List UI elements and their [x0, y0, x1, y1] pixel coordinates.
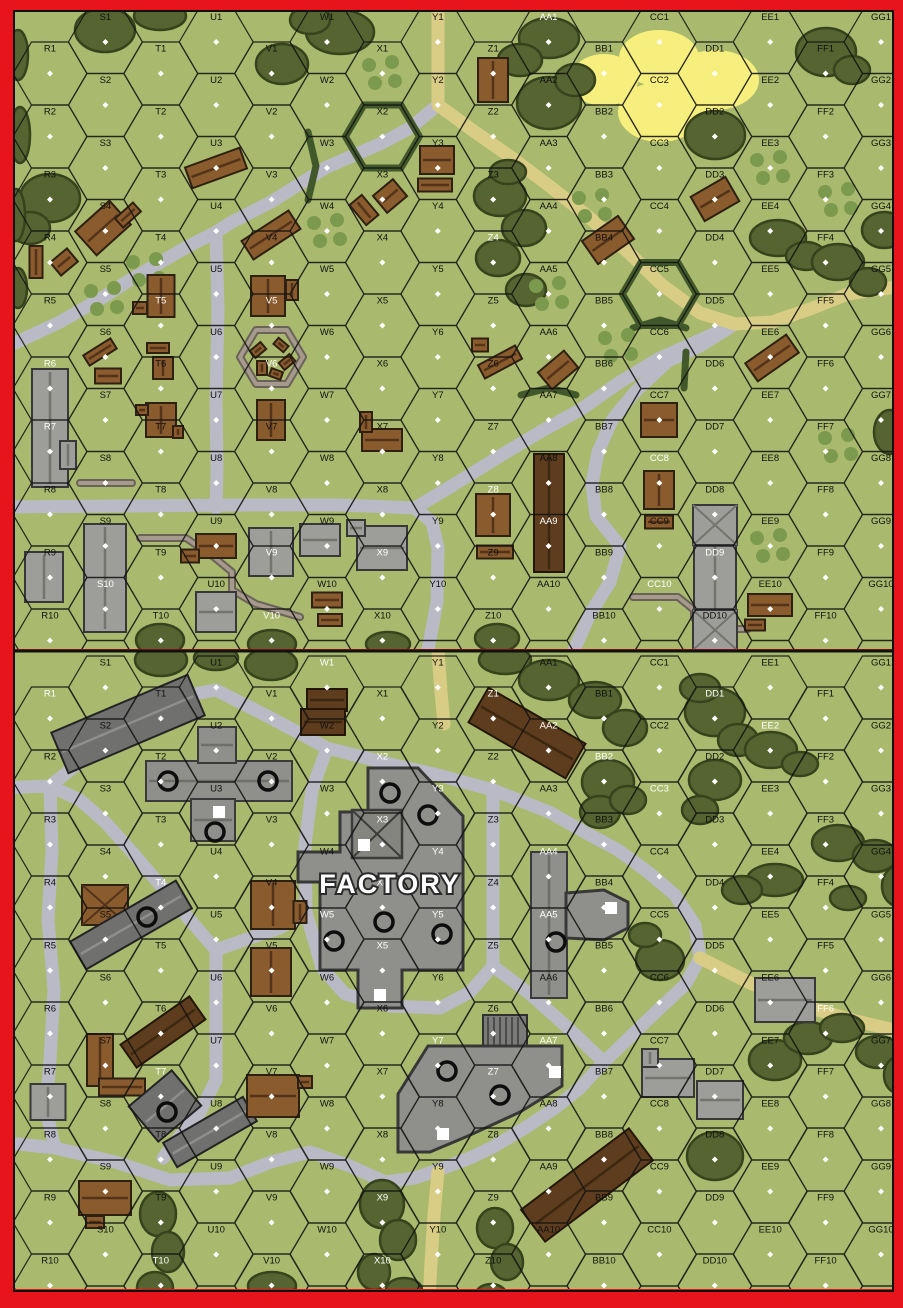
hex-label-Y5: Y5	[432, 910, 444, 921]
hex-label-W4: W4	[320, 201, 334, 212]
orchard-tree-icon	[624, 347, 638, 361]
hex-label-T9: T9	[155, 1193, 166, 1204]
hex-label-AA8: AA8	[540, 1099, 558, 1110]
hex-label-T7: T7	[155, 1067, 166, 1078]
hex-label-BB3: BB3	[595, 815, 613, 826]
hex-label-FF7: FF7	[817, 422, 834, 433]
hex-label-S6: S6	[100, 973, 112, 984]
hex-label-Z10: Z10	[485, 611, 501, 622]
hex-label-W9: W9	[320, 516, 334, 527]
hex-label-GG6: GG6	[871, 327, 891, 338]
hex-label-R7: R7	[44, 1067, 56, 1078]
hex-label-V5: V5	[266, 296, 278, 307]
hex-label-CC10: CC10	[647, 579, 671, 590]
hex-label-R1: R1	[44, 44, 56, 55]
hex-label-FF1: FF1	[817, 689, 834, 700]
hex-label-AA10: AA10	[537, 579, 560, 590]
hex-label-U10: U10	[207, 1225, 224, 1236]
building	[99, 1079, 145, 1096]
hex-label-GG3: GG3	[871, 784, 891, 795]
hex-label-U2: U2	[210, 75, 222, 86]
hex-label-FF9: FF9	[817, 548, 834, 559]
hex-label-Z8: Z8	[488, 485, 499, 496]
hex-label-DD8: DD8	[705, 1130, 724, 1141]
woods-icon	[256, 44, 308, 84]
hex-label-EE1: EE1	[761, 658, 779, 669]
building	[312, 593, 342, 608]
hex-label-W1: W1	[320, 12, 334, 23]
hex-label-CC9: CC9	[650, 1162, 669, 1173]
building	[418, 179, 452, 192]
hex-label-W5: W5	[320, 264, 334, 275]
hex-label-W8: W8	[320, 453, 334, 464]
hex-label-U9: U9	[210, 1162, 222, 1173]
hex-label-GG5: GG5	[871, 910, 891, 921]
orchard-tree-icon	[333, 232, 347, 246]
hex-label-T8: T8	[155, 485, 166, 496]
orchard-tree-icon	[313, 234, 327, 248]
hex-label-EE5: EE5	[761, 910, 779, 921]
hex-label-AA8: AA8	[540, 453, 558, 464]
hex-label-V2: V2	[266, 107, 278, 118]
hex-label-V7: V7	[266, 1067, 278, 1078]
hex-label-Y4: Y4	[432, 847, 444, 858]
hex-label-V4: V4	[266, 233, 278, 244]
woods-icon	[555, 64, 595, 96]
factory-label: FACTORY	[319, 869, 461, 899]
hex-label-S3: S3	[100, 784, 112, 795]
hex-label-EE7: EE7	[761, 1036, 779, 1047]
wargame-map-board: Hex wargame map boards (village + factor…	[0, 0, 903, 1308]
hex-label-Z8: Z8	[488, 1130, 499, 1141]
orchard-tree-icon	[529, 279, 543, 293]
hex-label-S2: S2	[100, 75, 112, 86]
hex-label-X6: X6	[377, 359, 389, 370]
building	[748, 594, 792, 616]
hex-label-FF3: FF3	[817, 170, 834, 181]
hex-label-S5: S5	[100, 910, 112, 921]
hex-label-GG7: GG7	[871, 1036, 891, 1047]
hex-label-GG5: GG5	[871, 264, 891, 275]
hex-label-Z10: Z10	[485, 1256, 501, 1267]
hex-label-BB5: BB5	[595, 296, 613, 307]
hex-label-AA2: AA2	[540, 721, 558, 732]
woods-icon	[834, 56, 870, 84]
hex-label-R4: R4	[44, 878, 56, 889]
hex-label-EE7: EE7	[761, 390, 779, 401]
hex-label-R5: R5	[44, 296, 56, 307]
hex-label-FF9: FF9	[817, 1193, 834, 1204]
hex-label-W2: W2	[320, 721, 334, 732]
hex-label-V4: V4	[266, 878, 278, 889]
hex-label-S9: S9	[100, 1162, 112, 1173]
hex-label-FF2: FF2	[817, 107, 834, 118]
hex-label-AA5: AA5	[540, 910, 558, 921]
hex-label-U10: U10	[207, 579, 224, 590]
hex-label-GG2: GG2	[871, 721, 891, 732]
hex-label-BB2: BB2	[595, 107, 613, 118]
hex-label-DD3: DD3	[705, 170, 724, 181]
orchard-tree-icon	[552, 276, 566, 290]
hex-label-T5: T5	[155, 296, 166, 307]
hedge-line	[684, 352, 686, 388]
hex-label-DD1: DD1	[705, 689, 724, 700]
hex-label-BB7: BB7	[595, 422, 613, 433]
lower-factory-board: R1R2R3R4R5R6R7R8R9R10S1S2S3S4S5S6S7S8S9S…	[0, 644, 903, 1308]
hex-label-U4: U4	[210, 847, 222, 858]
hex-label-Y9: Y9	[432, 1162, 444, 1173]
orchard-tree-icon	[90, 302, 104, 316]
hex-label-R8: R8	[44, 485, 56, 496]
hex-label-DD5: DD5	[705, 941, 724, 952]
hex-label-FF4: FF4	[817, 233, 834, 244]
hex-label-EE2: EE2	[761, 721, 779, 732]
hex-label-GG8: GG8	[871, 453, 891, 464]
hex-label-AA9: AA9	[540, 516, 558, 527]
hex-label-S8: S8	[100, 453, 112, 464]
hex-label-DD8: DD8	[705, 485, 724, 496]
hex-label-T3: T3	[155, 815, 166, 826]
hex-label-U2: U2	[210, 721, 222, 732]
hex-label-T6: T6	[155, 1004, 166, 1015]
orchard-tree-icon	[773, 150, 787, 164]
woods-icon	[782, 752, 818, 776]
hex-label-V10: V10	[263, 611, 280, 622]
hex-label-GG10: GG10	[868, 579, 893, 590]
hex-label-DD6: DD6	[705, 1004, 724, 1015]
building	[642, 1049, 658, 1067]
orchard-tree-icon	[84, 284, 98, 298]
orchard-tree-icon	[385, 55, 399, 69]
hex-label-FF4: FF4	[817, 878, 834, 889]
hex-label-X2: X2	[377, 107, 389, 118]
hex-label-T1: T1	[155, 44, 166, 55]
hex-label-EE6: EE6	[761, 327, 779, 338]
hex-label-AA10: AA10	[537, 1225, 560, 1236]
hex-label-X9: X9	[377, 1193, 389, 1204]
hex-label-W1: W1	[320, 658, 334, 669]
hex-label-X10: X10	[374, 611, 391, 622]
hex-label-R3: R3	[44, 815, 56, 826]
hex-label-X1: X1	[377, 44, 389, 55]
hex-label-GG7: GG7	[871, 390, 891, 401]
orchard-tree-icon	[126, 255, 140, 269]
hex-label-BB10: BB10	[592, 1256, 615, 1267]
building	[173, 426, 183, 438]
hex-label-BB8: BB8	[595, 485, 613, 496]
hex-label-W10: W10	[317, 579, 337, 590]
hex-label-DD6: DD6	[705, 359, 724, 370]
hex-label-Y7: Y7	[432, 390, 444, 401]
hex-label-V8: V8	[266, 485, 278, 496]
hex-label-AA3: AA3	[540, 784, 558, 795]
hex-label-Z3: Z3	[488, 815, 499, 826]
hex-label-AA3: AA3	[540, 138, 558, 149]
hex-label-Y3: Y3	[432, 138, 444, 149]
square-marker	[358, 839, 370, 851]
hex-label-V1: V1	[266, 689, 278, 700]
hex-label-EE10: EE10	[759, 1225, 782, 1236]
building	[31, 1084, 66, 1120]
hex-label-R9: R9	[44, 1193, 56, 1204]
hex-label-Y5: Y5	[432, 264, 444, 275]
hex-label-FF7: FF7	[817, 1067, 834, 1078]
hex-label-BB1: BB1	[595, 689, 613, 700]
hex-label-W10: W10	[317, 1225, 337, 1236]
hex-label-EE6: EE6	[761, 973, 779, 984]
hex-label-AA9: AA9	[540, 1162, 558, 1173]
hex-label-Z7: Z7	[488, 1067, 499, 1078]
hex-label-DD7: DD7	[705, 1067, 724, 1078]
hex-label-W3: W3	[320, 138, 334, 149]
hex-label-BB7: BB7	[595, 1067, 613, 1078]
orchard-tree-icon	[598, 207, 612, 221]
hex-label-W9: W9	[320, 1162, 334, 1173]
hex-label-W6: W6	[320, 973, 334, 984]
hex-label-BB2: BB2	[595, 752, 613, 763]
hex-label-U1: U1	[210, 658, 222, 669]
hex-label-Y7: Y7	[432, 1036, 444, 1047]
hex-label-X1: X1	[377, 689, 389, 700]
hex-label-AA4: AA4	[540, 847, 558, 858]
hex-label-DD4: DD4	[705, 233, 724, 244]
hex-label-V1: V1	[266, 44, 278, 55]
hex-label-U8: U8	[210, 453, 222, 464]
hex-label-T6: T6	[155, 359, 166, 370]
hex-label-CC3: CC3	[650, 784, 669, 795]
orchard-tree-icon	[368, 76, 382, 90]
hex-label-R3: R3	[44, 170, 56, 181]
hex-label-GG1: GG1	[871, 658, 891, 669]
hex-label-DD5: DD5	[705, 296, 724, 307]
hex-label-Y2: Y2	[432, 721, 444, 732]
orchard-tree-icon	[572, 191, 586, 205]
woods-icon	[475, 624, 519, 652]
hex-label-Y4: Y4	[432, 201, 444, 212]
hex-label-V7: V7	[266, 422, 278, 433]
orchard-tree-icon	[750, 153, 764, 167]
building	[294, 901, 307, 923]
hex-label-CC5: CC5	[650, 910, 669, 921]
woods-icon	[629, 923, 661, 947]
hex-label-EE10: EE10	[759, 579, 782, 590]
hex-label-CC5: CC5	[650, 264, 669, 275]
woods-icon	[610, 786, 646, 814]
hex-label-DD10: DD10	[703, 1256, 727, 1267]
building	[25, 552, 63, 602]
hex-label-GG4: GG4	[871, 847, 891, 858]
building	[198, 727, 236, 763]
hex-label-W7: W7	[320, 1036, 334, 1047]
hex-label-EE4: EE4	[761, 847, 779, 858]
hex-label-X2: X2	[377, 752, 389, 763]
hex-label-GG8: GG8	[871, 1099, 891, 1110]
hex-label-DD1: DD1	[705, 44, 724, 55]
hex-label-CC9: CC9	[650, 516, 669, 527]
hex-label-FF10: FF10	[815, 1256, 837, 1267]
orchard-tree-icon	[756, 549, 770, 563]
building	[318, 614, 342, 626]
hex-label-CC2: CC2	[650, 721, 669, 732]
building	[534, 454, 564, 572]
hex-label-S9: S9	[100, 516, 112, 527]
hex-label-T9: T9	[155, 548, 166, 559]
hex-label-AA1: AA1	[540, 658, 558, 669]
hex-label-X6: X6	[377, 1004, 389, 1015]
hex-label-Z4: Z4	[488, 233, 499, 244]
hex-label-EE3: EE3	[761, 784, 779, 795]
square-marker	[549, 1066, 561, 1078]
hex-label-W6: W6	[320, 327, 334, 338]
building	[133, 302, 147, 314]
hex-label-AA6: AA6	[540, 327, 558, 338]
building	[300, 524, 340, 556]
orchard-tree-icon	[844, 201, 858, 215]
hex-label-EE1: EE1	[761, 12, 779, 23]
orchard-tree-icon	[756, 171, 770, 185]
hex-label-R1: R1	[44, 689, 56, 700]
hex-label-V2: V2	[266, 752, 278, 763]
hex-label-U7: U7	[210, 1036, 222, 1047]
hex-label-S3: S3	[100, 138, 112, 149]
orchard-tree-icon	[330, 213, 344, 227]
hex-label-FF8: FF8	[817, 485, 834, 496]
hex-label-CC10: CC10	[647, 1225, 671, 1236]
hex-label-V5: V5	[266, 941, 278, 952]
hex-label-GG6: GG6	[871, 973, 891, 984]
hex-label-T5: T5	[155, 941, 166, 952]
hex-label-BB6: BB6	[595, 359, 613, 370]
hex-label-U9: U9	[210, 516, 222, 527]
hex-label-W4: W4	[320, 847, 334, 858]
hex-label-AA1: AA1	[540, 12, 558, 23]
hex-label-BB9: BB9	[595, 1193, 613, 1204]
orchard-tree-icon	[107, 281, 121, 295]
paved-road	[0, 505, 415, 508]
orchard-tree-icon	[598, 331, 612, 345]
hex-label-AA6: AA6	[540, 973, 558, 984]
hex-label-T4: T4	[155, 878, 166, 889]
building	[191, 799, 235, 841]
hex-label-DD9: DD9	[705, 1193, 724, 1204]
building	[79, 1181, 131, 1215]
hex-label-Y1: Y1	[432, 12, 444, 23]
hex-label-S4: S4	[100, 847, 112, 858]
hex-label-W3: W3	[320, 784, 334, 795]
square-marker	[605, 902, 617, 914]
hex-label-X4: X4	[377, 233, 389, 244]
orchard-tree-icon	[818, 185, 832, 199]
hex-label-GG3: GG3	[871, 138, 891, 149]
hex-label-T10: T10	[153, 1256, 169, 1267]
hex-label-R6: R6	[44, 1004, 56, 1015]
hex-label-X7: X7	[377, 1067, 389, 1078]
hex-label-R6: R6	[44, 359, 56, 370]
hex-label-EE4: EE4	[761, 201, 779, 212]
hex-label-AA7: AA7	[540, 1036, 558, 1047]
border-left	[0, 0, 14, 1308]
hex-label-GG4: GG4	[871, 201, 891, 212]
building	[745, 620, 765, 631]
orchard-tree-icon	[844, 447, 858, 461]
hex-label-T2: T2	[155, 752, 166, 763]
hex-label-X8: X8	[377, 1130, 389, 1141]
hex-label-AA2: AA2	[540, 75, 558, 86]
hex-label-Z7: Z7	[488, 422, 499, 433]
hex-label-V3: V3	[266, 170, 278, 181]
hex-label-CC4: CC4	[650, 201, 669, 212]
orchard-tree-icon	[750, 531, 764, 545]
building	[60, 441, 76, 469]
hex-label-U1: U1	[210, 12, 222, 23]
hex-label-U6: U6	[210, 973, 222, 984]
woods-icon	[245, 648, 297, 680]
hex-label-FF6: FF6	[817, 359, 834, 370]
orchard-tree-icon	[388, 74, 402, 88]
hex-label-FF1: FF1	[817, 44, 834, 55]
hex-label-DD3: DD3	[705, 815, 724, 826]
building	[472, 339, 488, 352]
hex-label-Z2: Z2	[488, 107, 499, 118]
hex-label-GG2: GG2	[871, 75, 891, 86]
hex-label-S2: S2	[100, 721, 112, 732]
hex-label-CC8: CC8	[650, 453, 669, 464]
hex-label-Y8: Y8	[432, 1099, 444, 1110]
hex-label-U5: U5	[210, 910, 222, 921]
building	[30, 246, 43, 278]
hex-label-DD2: DD2	[705, 107, 724, 118]
hex-label-V9: V9	[266, 1193, 278, 1204]
hex-label-R10: R10	[41, 1256, 58, 1267]
orchard-tree-icon	[307, 216, 321, 230]
hex-label-FF10: FF10	[815, 611, 837, 622]
hex-label-CC1: CC1	[650, 658, 669, 669]
hex-label-AA5: AA5	[540, 264, 558, 275]
hex-label-Z9: Z9	[488, 548, 499, 559]
building	[147, 343, 169, 353]
hex-label-DD10: DD10	[703, 611, 727, 622]
woods-icon	[820, 1014, 864, 1042]
woods-icon	[603, 710, 647, 746]
hex-label-AA7: AA7	[540, 390, 558, 401]
hex-label-X5: X5	[377, 296, 389, 307]
building	[181, 550, 199, 563]
hex-label-W8: W8	[320, 1099, 334, 1110]
border-right	[893, 0, 903, 1308]
building	[697, 1081, 743, 1119]
hex-label-BB3: BB3	[595, 170, 613, 181]
hex-label-Z9: Z9	[488, 1193, 499, 1204]
hex-label-U3: U3	[210, 784, 222, 795]
hex-label-V6: V6	[266, 359, 278, 370]
hex-label-AA4: AA4	[540, 201, 558, 212]
hex-label-W2: W2	[320, 75, 334, 86]
building	[360, 412, 372, 432]
hex-label-BB4: BB4	[595, 233, 613, 244]
hex-label-S4: S4	[100, 201, 112, 212]
hex-label-CC4: CC4	[650, 847, 669, 858]
hex-label-Y10: Y10	[429, 1225, 446, 1236]
hex-label-V9: V9	[266, 548, 278, 559]
woods-icon	[477, 1208, 513, 1248]
hex-label-R10: R10	[41, 611, 58, 622]
hex-label-V3: V3	[266, 815, 278, 826]
orchard-tree-icon	[555, 295, 569, 309]
hex-label-GG9: GG9	[871, 1162, 891, 1173]
hex-label-R5: R5	[44, 941, 56, 952]
hex-label-DD4: DD4	[705, 878, 724, 889]
hex-label-FF5: FF5	[817, 296, 834, 307]
